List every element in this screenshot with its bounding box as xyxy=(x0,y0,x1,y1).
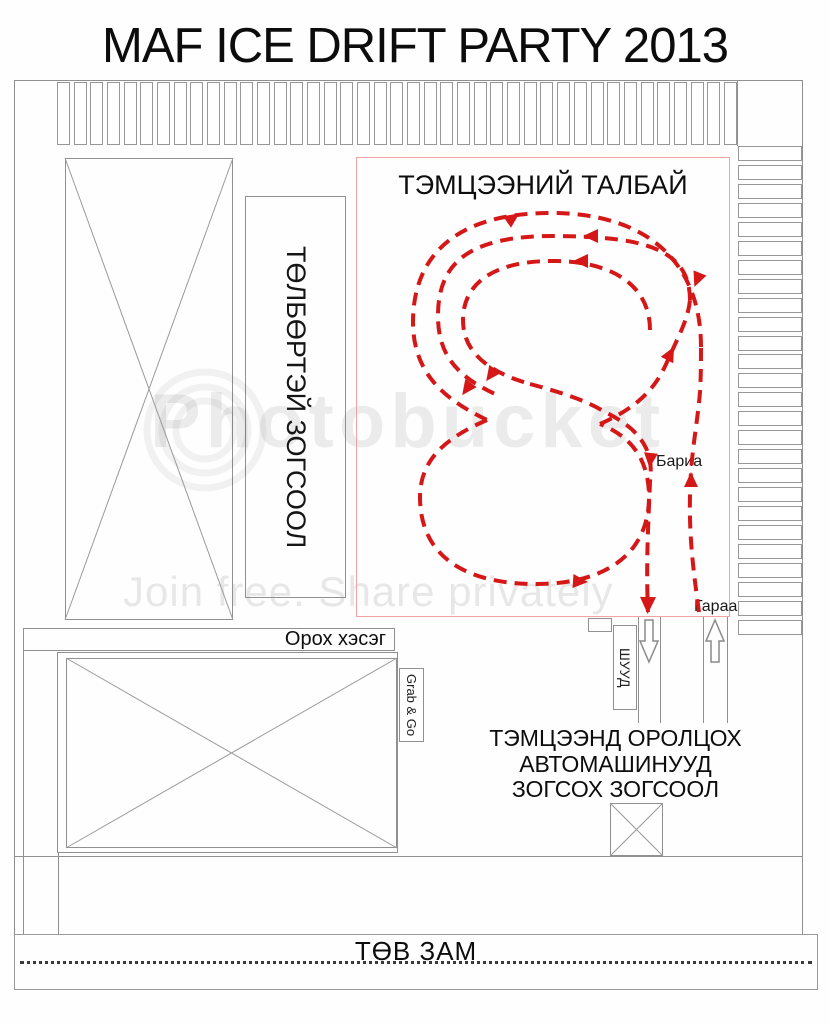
parking-slot xyxy=(307,82,320,145)
parking-slot xyxy=(738,146,802,161)
parking-slot xyxy=(738,582,802,597)
parking-slot xyxy=(257,82,270,145)
parking-slot xyxy=(738,468,802,483)
parking-slot xyxy=(738,260,802,275)
parking-slot xyxy=(274,82,287,145)
parking-slot xyxy=(738,430,802,445)
parking-slot xyxy=(124,82,137,145)
left-crossed-area xyxy=(65,158,233,620)
lower-crossed-area xyxy=(66,658,397,848)
down-arrow xyxy=(640,620,658,662)
competition-area-title: ТЭМЦЭЭНИЙ ТАЛБАЙ xyxy=(357,170,729,201)
parking-slot xyxy=(738,392,802,407)
frame-right-line xyxy=(802,80,803,934)
direct-lane-box: ШУУД xyxy=(613,625,637,710)
competition-area: ТЭМЦЭЭНИЙ ТАЛБАЙ xyxy=(356,157,730,617)
parking-slot xyxy=(607,82,620,145)
parking-slot xyxy=(738,241,802,256)
road-center-dotted-line xyxy=(20,961,812,964)
parking-slot xyxy=(407,82,420,145)
parking-slot xyxy=(290,82,303,145)
parking-slot xyxy=(540,82,553,145)
parking-slot xyxy=(738,544,802,559)
entry-section-label: Орох хэсэг xyxy=(285,628,386,651)
participants-parking-text: ТЭМЦЭЭНД ОРОЛЦОХ АВТОМАШИНУУД ЗОГСОХ ЗОГ… xyxy=(483,726,748,803)
grab-and-go-label: Grab & Go xyxy=(404,674,419,736)
parking-slot xyxy=(738,449,802,464)
parking-slot xyxy=(524,82,537,145)
up-lane-right-line xyxy=(727,617,728,723)
parking-slot xyxy=(574,82,587,145)
down-lane-left-line xyxy=(638,617,639,723)
parking-slot xyxy=(490,82,503,145)
down-lane-right-line xyxy=(660,617,661,723)
parking-slot xyxy=(738,354,802,369)
parking-slot xyxy=(57,82,70,145)
parking-slot xyxy=(707,82,720,145)
parking-slot xyxy=(324,82,337,145)
right-parking-column xyxy=(738,146,802,635)
parking-slot xyxy=(738,373,802,388)
frame-bottom-line xyxy=(14,856,803,857)
parking-slot xyxy=(624,82,637,145)
parking-slot xyxy=(140,82,153,145)
lane-direction-arrows xyxy=(640,620,724,662)
parking-slot xyxy=(507,82,520,145)
paid-parking-label: ТӨЛБӨРТЭЙ ЗОГСООЛ xyxy=(280,246,311,548)
left-corridor-line-inner xyxy=(58,853,59,934)
parking-slot xyxy=(107,82,120,145)
parking-slot xyxy=(207,82,220,145)
parking-slot xyxy=(340,82,353,145)
parking-slot xyxy=(738,184,802,199)
parking-slot xyxy=(738,411,802,426)
parking-slot xyxy=(374,82,387,145)
parking-slot xyxy=(738,601,802,616)
parking-slot xyxy=(738,620,802,635)
up-arrow xyxy=(706,620,724,662)
parking-slot xyxy=(224,82,237,145)
parking-slot xyxy=(738,298,802,313)
top-parking-row xyxy=(57,82,737,145)
up-lane-left-line xyxy=(703,617,704,723)
parking-slot xyxy=(440,82,453,145)
parking-slot xyxy=(657,82,670,145)
left-corridor-line-outer xyxy=(23,651,24,934)
small-crossed-box xyxy=(610,803,663,856)
parking-slot xyxy=(738,165,802,180)
parking-slot xyxy=(691,82,704,145)
parking-slot xyxy=(738,317,802,332)
participants-parking-line3: ЗОГСОХ ЗОГСООЛ xyxy=(483,777,748,803)
parking-slot xyxy=(190,82,203,145)
parking-slot xyxy=(738,336,802,351)
parking-slot xyxy=(557,82,570,145)
participants-parking-line2: АВТОМАШИНУУД xyxy=(483,752,748,778)
parking-slot xyxy=(674,82,687,145)
frame-topright-divider xyxy=(737,80,738,146)
parking-slot xyxy=(474,82,487,145)
parking-slot xyxy=(357,82,370,145)
start-label: Гараа xyxy=(694,598,737,616)
lane-tab-box xyxy=(588,618,612,632)
parking-slot xyxy=(90,82,103,145)
direct-lane-label: ШУУД xyxy=(617,648,633,687)
frame-left-line xyxy=(14,80,15,934)
parking-slot xyxy=(724,82,737,145)
site-plan: Photobucket Join free. Share privately M… xyxy=(0,0,830,1024)
parking-slot xyxy=(738,563,802,578)
parking-slot xyxy=(240,82,253,145)
parking-slot xyxy=(457,82,470,145)
parking-slot xyxy=(157,82,170,145)
grab-and-go-box: Grab & Go xyxy=(399,668,424,742)
parking-slot xyxy=(738,203,802,218)
parking-slot xyxy=(424,82,437,145)
parking-slot xyxy=(591,82,604,145)
parking-slot xyxy=(738,487,802,502)
parking-slot xyxy=(641,82,654,145)
parking-slot xyxy=(390,82,403,145)
participants-parking-line1: ТЭМЦЭЭНД ОРОЛЦОХ xyxy=(483,726,748,752)
entry-section-bar: Орох хэсэг xyxy=(23,628,395,651)
parking-slot xyxy=(738,279,802,294)
parking-slot xyxy=(738,222,802,237)
parking-slot xyxy=(74,82,87,145)
paid-parking-box: ТӨЛБӨРТЭЙ ЗОГСООЛ xyxy=(245,196,346,598)
page-title: MAF ICE DRIFT PARTY 2013 xyxy=(0,18,830,74)
frame-top-line xyxy=(14,80,803,81)
parking-slot xyxy=(738,525,802,540)
parking-slot xyxy=(174,82,187,145)
finish-label: Бариа xyxy=(656,453,702,471)
parking-slot xyxy=(738,506,802,521)
